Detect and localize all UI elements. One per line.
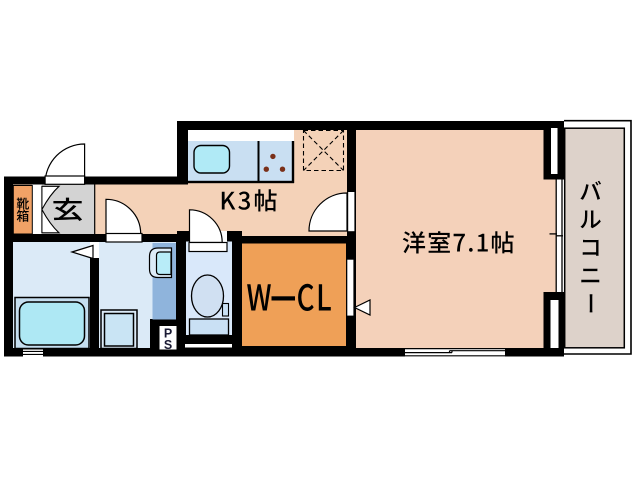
svg-text:S: S — [164, 338, 172, 352]
